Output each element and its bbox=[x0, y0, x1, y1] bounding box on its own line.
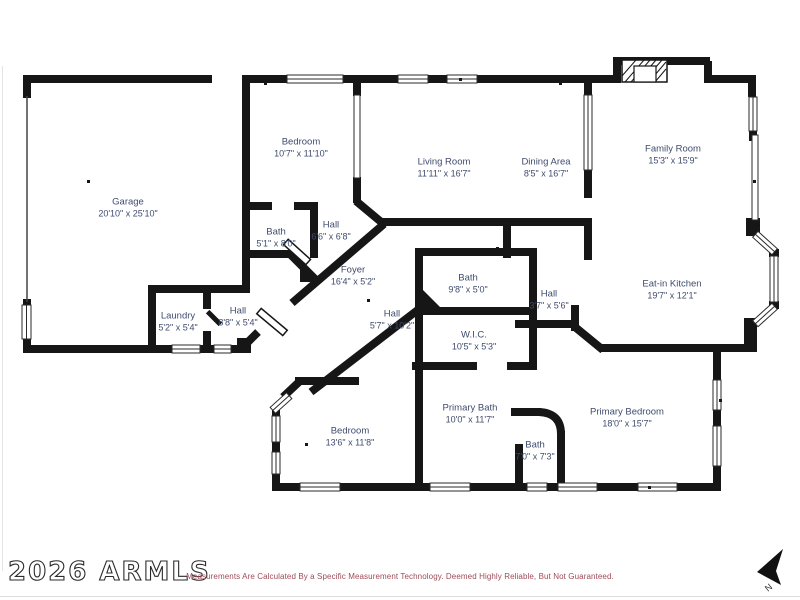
walls bbox=[23, 61, 756, 491]
page-bottom-edge bbox=[0, 596, 800, 597]
disclaimer-text: Measurements Are Calculated By a Specifi… bbox=[0, 572, 800, 581]
door-swing-triangle bbox=[421, 288, 443, 310]
windows bbox=[22, 75, 778, 491]
entry-door-leaf bbox=[257, 308, 288, 335]
floorplan-page: N 2026 ARMLS Garage20'10" x 25'10"Bedroo… bbox=[0, 0, 800, 600]
fireplace bbox=[622, 60, 667, 82]
compass-n-label: N bbox=[763, 582, 774, 594]
page-left-edge bbox=[2, 66, 3, 571]
floorplan-drawing: N 2026 ARMLS bbox=[0, 0, 800, 600]
laundry-door-leaf bbox=[206, 310, 222, 326]
